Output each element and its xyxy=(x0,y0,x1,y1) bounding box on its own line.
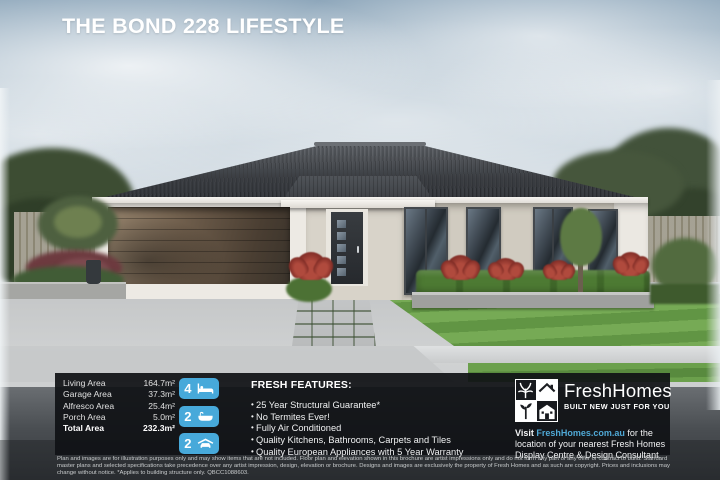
brochure-page: H THE BOND 228 LIFESTYLE Living Area164.… xyxy=(0,0,720,480)
area-value: 37.3m² xyxy=(148,389,175,400)
bromeliad-plant xyxy=(618,252,643,276)
badge-count: 4 xyxy=(184,381,191,396)
planter-wall xyxy=(412,292,654,308)
visit-prefix: Visit xyxy=(515,428,536,438)
disclaimer-text: Plan and images are for illustration pur… xyxy=(57,456,673,477)
area-label: Living Area xyxy=(63,378,106,389)
bed-icon xyxy=(197,383,214,394)
area-label: Garage Area xyxy=(63,389,112,400)
area-label: Porch Area xyxy=(63,412,106,423)
photo-edge-right xyxy=(706,80,720,410)
bromeliad-plant xyxy=(548,260,570,280)
features-heading: FRESH FEATURES: xyxy=(251,379,463,391)
door-glass xyxy=(337,256,346,264)
badge-count: 2 xyxy=(184,436,191,451)
house-facade-icon xyxy=(537,401,557,421)
garage-icon xyxy=(197,438,214,449)
door-glass xyxy=(337,244,346,252)
area-row-total: Total Area232.3m² xyxy=(63,423,175,434)
door-glass xyxy=(337,268,346,276)
grass-icon xyxy=(516,380,536,400)
page-title: THE BOND 228 LIFESTYLE xyxy=(62,14,345,39)
features-list: 25 Year Structural Guarantee*No Termites… xyxy=(251,400,463,459)
area-label: Alfresco Area xyxy=(63,401,114,412)
brand-tagline: BUILT NEW JUST FOR YOU xyxy=(564,402,672,411)
yucca-plant xyxy=(560,208,602,266)
feature-item: Fully Air Conditioned xyxy=(251,423,463,435)
feature-item: No Termites Ever! xyxy=(251,412,463,424)
tree-icon xyxy=(516,401,536,421)
room-badges: 422 xyxy=(179,378,219,461)
garden-wall-left xyxy=(0,282,126,299)
badge-bath: 2 xyxy=(179,406,219,427)
bromeliad-plant xyxy=(296,252,326,280)
info-panel: Living Area164.7m²Garage Area37.3m²Alfre… xyxy=(55,373,670,455)
brand-name: FreshHomes xyxy=(564,381,672,400)
bromeliad-plant xyxy=(493,258,518,280)
badge-bed: 4 xyxy=(179,378,219,399)
bath-icon xyxy=(197,411,214,422)
area-label: Total Area xyxy=(63,423,104,434)
feature-item: Quality Kitchens, Bathrooms, Carpets and… xyxy=(251,435,463,447)
area-table: Living Area164.7m²Garage Area37.3m²Alfre… xyxy=(63,378,175,434)
door-glass xyxy=(337,232,346,240)
area-value: 164.7m² xyxy=(143,378,175,389)
freshhomes-logo xyxy=(515,379,558,422)
area-value: 5.0m² xyxy=(153,412,175,423)
area-row: Alfresco Area25.4m² xyxy=(63,401,175,412)
features-block: FRESH FEATURES: 25 Year Structural Guara… xyxy=(251,379,463,459)
door-handle xyxy=(357,246,359,253)
area-row: Garage Area37.3m² xyxy=(63,389,175,400)
area-value: 232.3m² xyxy=(143,423,175,434)
brand-block: FreshHomes BUILT NEW JUST FOR YOU Visit … xyxy=(515,379,667,460)
photo-edge-left xyxy=(0,88,10,480)
roof-ridge xyxy=(314,142,426,146)
area-value: 25.4m² xyxy=(148,401,175,412)
garage-door xyxy=(108,207,290,284)
freshhomes-link[interactable]: FreshHomes.com.au xyxy=(536,428,625,438)
front-door xyxy=(331,212,363,284)
badge-garage: 2 xyxy=(179,433,219,454)
door-glass xyxy=(337,220,346,228)
palm-plant-left xyxy=(54,206,102,238)
area-row: Living Area164.7m² xyxy=(63,378,175,389)
area-row: Porch Area5.0m² xyxy=(63,412,175,423)
badge-count: 2 xyxy=(184,409,191,424)
bromeliad-plant xyxy=(447,255,474,280)
plant-pot xyxy=(86,260,101,284)
feature-item: 25 Year Structural Guarantee* xyxy=(251,400,463,412)
house-outline-icon xyxy=(537,380,557,400)
